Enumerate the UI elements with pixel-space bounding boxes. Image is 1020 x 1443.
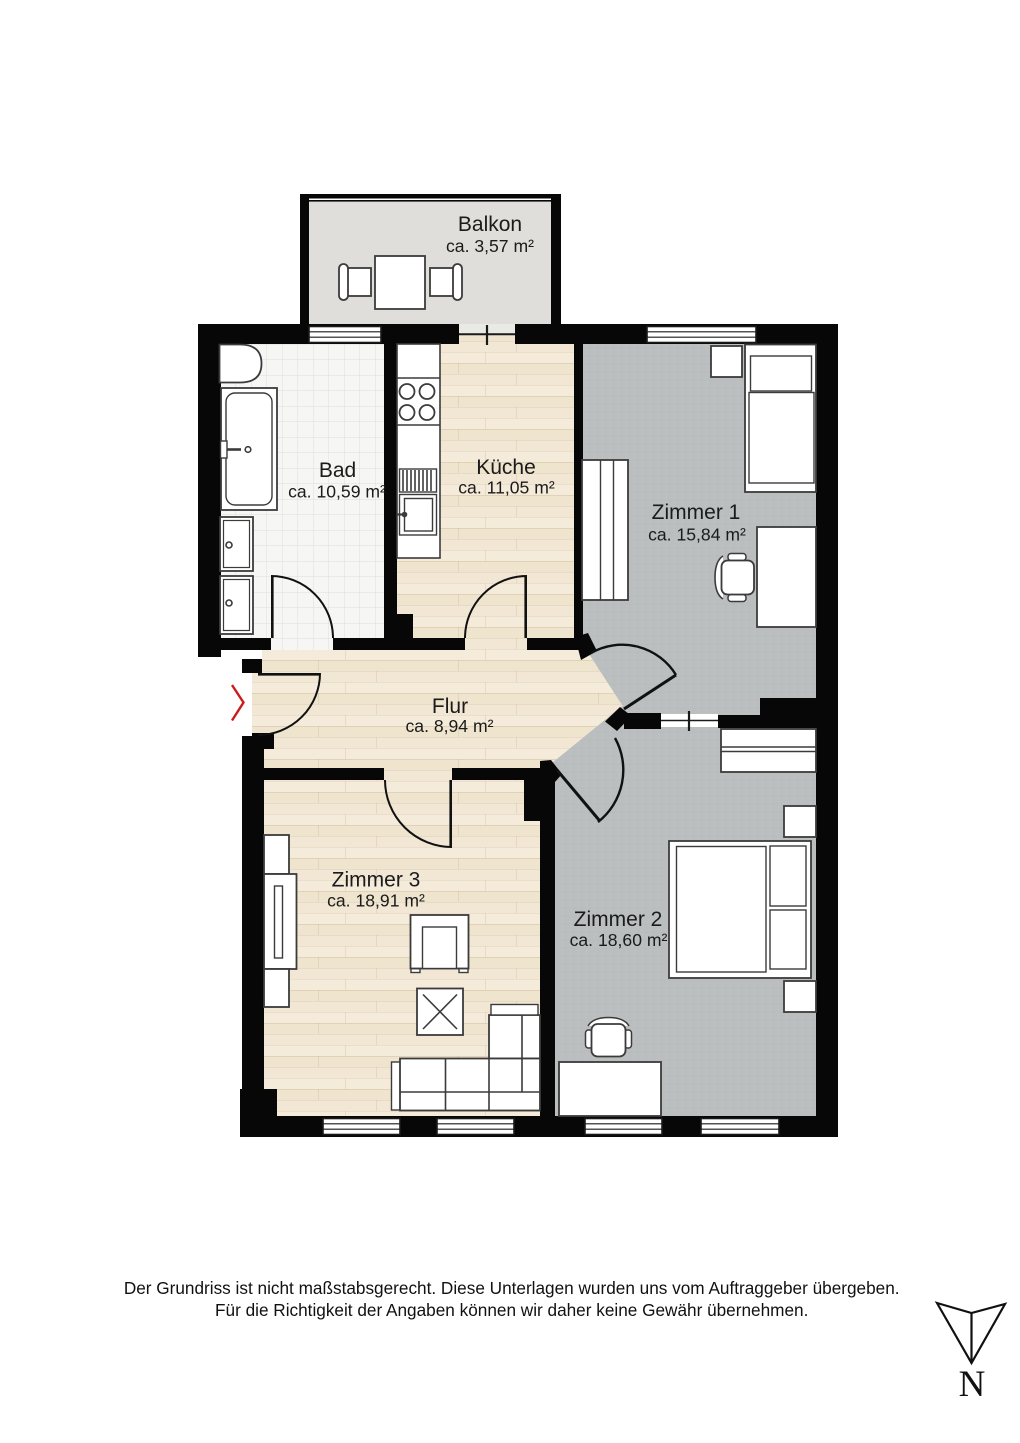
- svg-text:Der Grundriss ist nicht maßsta: Der Grundriss ist nicht maßstabsgerecht.…: [124, 1278, 900, 1298]
- svg-text:Balkon: Balkon: [458, 213, 522, 236]
- svg-text:Bad: Bad: [319, 459, 356, 482]
- svg-text:Küche: Küche: [476, 456, 536, 479]
- svg-text:Zimmer 3: Zimmer 3: [332, 869, 421, 892]
- svg-text:ca. 8,94 m²: ca. 8,94 m²: [405, 716, 493, 736]
- svg-text:ca. 15,84 m²: ca. 15,84 m²: [648, 525, 746, 545]
- svg-text:N: N: [959, 1364, 986, 1405]
- svg-text:Zimmer 1: Zimmer 1: [652, 501, 741, 524]
- svg-text:ca. 11,05 m²: ca. 11,05 m²: [458, 478, 555, 498]
- svg-text:ca. 10,59 m²: ca. 10,59 m²: [288, 482, 386, 502]
- svg-text:Flur: Flur: [432, 695, 468, 718]
- svg-text:ca. 18,91 m²: ca. 18,91 m²: [327, 891, 425, 911]
- svg-text:Zimmer 2: Zimmer 2: [574, 908, 663, 931]
- svg-text:ca. 18,60 m²: ca. 18,60 m²: [570, 930, 668, 950]
- svg-text:Für die Richtigkeit der Angabe: Für die Richtigkeit der Angaben können w…: [215, 1300, 808, 1320]
- svg-text:ca. 3,57 m²: ca. 3,57 m²: [446, 236, 534, 256]
